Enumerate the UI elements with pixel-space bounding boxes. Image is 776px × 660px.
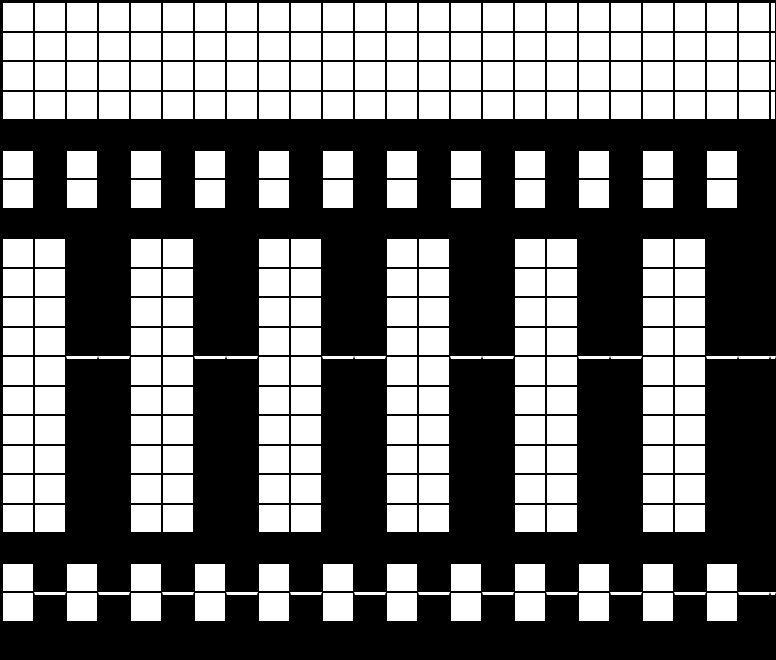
grid-cell [546, 356, 578, 386]
grid-cell [610, 533, 642, 563]
grid-cell [258, 238, 290, 268]
grid-cell [194, 120, 226, 150]
grid-cell [34, 474, 66, 504]
grid-cell [162, 91, 194, 121]
grid-cell [546, 327, 578, 357]
grid-cell [738, 592, 770, 622]
grid-cell [450, 238, 482, 268]
grid-cell [418, 150, 450, 180]
grid-cell [162, 120, 194, 150]
grid-cell [610, 32, 642, 62]
grid-cell [642, 327, 674, 357]
grid-cell [610, 474, 642, 504]
grid-cell [226, 386, 258, 416]
grid-cell [610, 209, 642, 239]
grid-cell [738, 179, 770, 209]
grid-cell [418, 592, 450, 622]
grid-cell [226, 179, 258, 209]
grid-cell [290, 415, 322, 445]
grid-cell [34, 504, 66, 534]
grid-cell [66, 297, 98, 327]
grid-cell [674, 563, 706, 593]
grid-cell [66, 592, 98, 622]
grid-cell [450, 327, 482, 357]
grid-cell [162, 533, 194, 563]
grid-cell [514, 592, 546, 622]
grid-cell [418, 32, 450, 62]
grid-cell [290, 297, 322, 327]
grid-cell [322, 356, 354, 386]
grid-cell [738, 622, 770, 660]
pattern-chart [0, 0, 776, 660]
grid-cell [130, 209, 162, 239]
grid-cell [386, 327, 418, 357]
grid-cell [482, 179, 514, 209]
grid-cell [194, 622, 226, 660]
grid-cell [66, 533, 98, 563]
grid-cell [770, 179, 776, 209]
grid-cell [66, 327, 98, 357]
grid-cell [290, 209, 322, 239]
grid-cell [738, 563, 770, 593]
grid-cell [354, 61, 386, 91]
grid-cell [354, 533, 386, 563]
grid-cell [482, 356, 514, 386]
grid-cell [34, 297, 66, 327]
grid-cell [706, 2, 738, 32]
grid-cell [34, 32, 66, 62]
grid-cell [514, 61, 546, 91]
grid-cell [258, 445, 290, 475]
grid-cell [578, 356, 610, 386]
grid-cell [450, 445, 482, 475]
grid-cell [162, 474, 194, 504]
grid-cell [706, 415, 738, 445]
grid-cell [162, 150, 194, 180]
grid-cell [290, 32, 322, 62]
grid-cell [514, 91, 546, 121]
grid-cell [354, 592, 386, 622]
grid-cell [130, 474, 162, 504]
grid-cell [2, 533, 34, 563]
grid-cell [418, 179, 450, 209]
grid-cell [162, 209, 194, 239]
grid-cell [130, 415, 162, 445]
grid-cell [642, 445, 674, 475]
grid-cell [482, 563, 514, 593]
grid-cell [34, 563, 66, 593]
grid-cell [130, 533, 162, 563]
grid-cell [674, 238, 706, 268]
grid-cell [738, 297, 770, 327]
grid-cell [290, 327, 322, 357]
grid-cell [2, 356, 34, 386]
grid-cell [610, 563, 642, 593]
grid-cell [706, 150, 738, 180]
grid-cell [770, 327, 776, 357]
grid-cell [226, 32, 258, 62]
grid-cell [482, 209, 514, 239]
grid-cell [98, 504, 130, 534]
grid-cell [226, 91, 258, 121]
grid-cell [738, 533, 770, 563]
grid-cell [546, 592, 578, 622]
grid-cell [98, 386, 130, 416]
grid-cell [578, 386, 610, 416]
grid-cell [162, 327, 194, 357]
grid-cell [578, 209, 610, 239]
grid-cell [98, 2, 130, 32]
grid-cell [2, 179, 34, 209]
grid-cell [322, 91, 354, 121]
grid-cell [418, 622, 450, 660]
grid-cell [226, 356, 258, 386]
grid-cell [770, 415, 776, 445]
grid-cell [354, 356, 386, 386]
grid-cell [386, 563, 418, 593]
grid-cell [482, 592, 514, 622]
grid-cell [2, 386, 34, 416]
grid-cell [546, 386, 578, 416]
grid-cell [322, 415, 354, 445]
grid-cell [98, 32, 130, 62]
grid-cell [98, 150, 130, 180]
grid-cell [226, 533, 258, 563]
grid-cell [642, 179, 674, 209]
grid-cell [354, 445, 386, 475]
grid-cell [546, 415, 578, 445]
grid-cell [674, 386, 706, 416]
grid-cell [194, 563, 226, 593]
grid-cell [322, 120, 354, 150]
grid-cell [322, 268, 354, 298]
grid-cell [354, 563, 386, 593]
grid-cell [290, 238, 322, 268]
grid-cell [354, 622, 386, 660]
grid-cell [162, 356, 194, 386]
grid-cell [514, 179, 546, 209]
grid-cell [450, 356, 482, 386]
grid-cell [290, 356, 322, 386]
grid-cell [2, 622, 34, 660]
grid-cell [130, 268, 162, 298]
grid-cell [482, 297, 514, 327]
grid-cell [2, 120, 34, 150]
grid-cell [290, 179, 322, 209]
grid-cell [194, 150, 226, 180]
grid-cell [258, 622, 290, 660]
grid-cell [162, 179, 194, 209]
grid-cell [674, 91, 706, 121]
grid-cell [738, 415, 770, 445]
grid-cell [674, 415, 706, 445]
grid-cell [514, 32, 546, 62]
grid-cell [642, 268, 674, 298]
grid-cell [226, 268, 258, 298]
grid-cell [546, 2, 578, 32]
grid-cell [98, 563, 130, 593]
grid-cell [162, 2, 194, 32]
grid-cell [578, 238, 610, 268]
grid-cell [546, 474, 578, 504]
grid-cell [642, 120, 674, 150]
grid-cell [706, 91, 738, 121]
grid-cell [194, 386, 226, 416]
grid-cell [322, 445, 354, 475]
grid-cell [610, 386, 642, 416]
grid-cell [418, 209, 450, 239]
grid-cell [418, 91, 450, 121]
grid-cell [194, 415, 226, 445]
grid-cell [66, 120, 98, 150]
grid-cell [386, 415, 418, 445]
grid-cell [386, 504, 418, 534]
grid-cell [738, 2, 770, 32]
grid-cell [642, 2, 674, 32]
grid-cell [226, 150, 258, 180]
grid-cell [610, 268, 642, 298]
grid-cell [66, 268, 98, 298]
grid-cell [482, 327, 514, 357]
grid-cell [770, 238, 776, 268]
grid-cell [194, 268, 226, 298]
grid-cell [354, 120, 386, 150]
grid-cell [98, 445, 130, 475]
grid-cell [674, 592, 706, 622]
grid-cell [482, 622, 514, 660]
grid-cell [2, 268, 34, 298]
grid-cell [674, 445, 706, 475]
grid-cell [514, 474, 546, 504]
grid-cell [354, 2, 386, 32]
grid-cell [66, 238, 98, 268]
grid-cell [2, 474, 34, 504]
grid-cell [258, 474, 290, 504]
grid-cell [642, 297, 674, 327]
grid-cell [674, 150, 706, 180]
grid-cell [34, 209, 66, 239]
grid-cell [226, 238, 258, 268]
grid-cell [386, 356, 418, 386]
grid-cell [482, 91, 514, 121]
grid-cell [66, 622, 98, 660]
grid-cell [706, 592, 738, 622]
grid-cell [194, 474, 226, 504]
grid-cell [770, 2, 776, 32]
grid-cell [162, 504, 194, 534]
grid-cell [34, 179, 66, 209]
grid-cell [162, 592, 194, 622]
grid-cell [130, 504, 162, 534]
grid-cell [2, 2, 34, 32]
grid-cell [514, 268, 546, 298]
grid-cell [674, 268, 706, 298]
grid-cell [674, 179, 706, 209]
grid-cell [482, 445, 514, 475]
grid-cell [514, 356, 546, 386]
grid-cell [770, 297, 776, 327]
grid-cell [226, 415, 258, 445]
grid-cell [66, 474, 98, 504]
grid-cell [290, 386, 322, 416]
grid-cell [418, 61, 450, 91]
grid-cell [354, 150, 386, 180]
grid-cell [290, 445, 322, 475]
grid-cell [130, 238, 162, 268]
grid-cell [642, 415, 674, 445]
grid-cell [482, 238, 514, 268]
grid-cell [194, 356, 226, 386]
grid-cell [386, 445, 418, 475]
grid-cell [546, 445, 578, 475]
grid-cell [34, 445, 66, 475]
grid-cell [386, 209, 418, 239]
grid-cell [450, 209, 482, 239]
grid-cell [130, 2, 162, 32]
grid-cell [610, 327, 642, 357]
grid-cell [738, 504, 770, 534]
grid-cell [258, 179, 290, 209]
grid-cell [482, 150, 514, 180]
grid-cell [578, 592, 610, 622]
grid-cell [770, 268, 776, 298]
grid-cell [162, 238, 194, 268]
grid-cell [66, 415, 98, 445]
grid-cell [674, 533, 706, 563]
grid-cell [66, 386, 98, 416]
grid-cell [514, 415, 546, 445]
grid-cell [98, 356, 130, 386]
grid-cell [290, 504, 322, 534]
grid-cell [642, 32, 674, 62]
grid-cell [386, 32, 418, 62]
grid-cell [258, 120, 290, 150]
grid-cell [34, 415, 66, 445]
grid-cell [578, 474, 610, 504]
grid-cell [546, 622, 578, 660]
grid-cell [226, 2, 258, 32]
grid-cell [322, 327, 354, 357]
grid-cell [322, 2, 354, 32]
grid-cell [738, 356, 770, 386]
grid-cell [610, 238, 642, 268]
grid-cell [514, 150, 546, 180]
grid-cell [642, 150, 674, 180]
grid-cell [162, 415, 194, 445]
grid-cell [194, 297, 226, 327]
grid-cell [770, 150, 776, 180]
grid-cell [674, 327, 706, 357]
grid-cell [258, 61, 290, 91]
grid-cell [578, 563, 610, 593]
grid-cell [514, 2, 546, 32]
grid-cell [450, 415, 482, 445]
grid-cell [130, 356, 162, 386]
grid-cell [290, 61, 322, 91]
grid-cell [706, 504, 738, 534]
grid-cell [130, 32, 162, 62]
grid-cell [162, 268, 194, 298]
grid-cell [770, 32, 776, 62]
grid-cell [322, 150, 354, 180]
grid-cell [418, 386, 450, 416]
grid-cell [354, 32, 386, 62]
grid-cell [482, 32, 514, 62]
grid-cell [322, 61, 354, 91]
grid-cell [674, 504, 706, 534]
grid-cell [226, 297, 258, 327]
grid-cell [290, 268, 322, 298]
grid-cell [706, 209, 738, 239]
grid-cell [546, 120, 578, 150]
grid-cell [386, 179, 418, 209]
grid-cell [770, 622, 776, 660]
grid-cell [322, 179, 354, 209]
grid-cell [482, 474, 514, 504]
grid-cell [98, 592, 130, 622]
grid-cell [546, 238, 578, 268]
grid-cell [642, 61, 674, 91]
grid-cell [130, 179, 162, 209]
grid-cell [98, 297, 130, 327]
grid-cell [386, 592, 418, 622]
grid-cell [418, 297, 450, 327]
grid-cell [322, 533, 354, 563]
grid-cell [706, 327, 738, 357]
grid-cell [738, 61, 770, 91]
grid-cell [98, 533, 130, 563]
grid-cell [738, 268, 770, 298]
grid-cell [578, 150, 610, 180]
grid-cell [450, 386, 482, 416]
grid-cell [610, 91, 642, 121]
grid-cell [706, 297, 738, 327]
grid-cell [770, 356, 776, 386]
grid-cell [578, 327, 610, 357]
grid-cell [578, 415, 610, 445]
grid-cell [450, 2, 482, 32]
grid-cell [194, 238, 226, 268]
grid-cell [642, 533, 674, 563]
grid-cell [2, 504, 34, 534]
grid-cell [706, 61, 738, 91]
grid-cell [450, 474, 482, 504]
grid-cell [130, 91, 162, 121]
grid-cell [642, 209, 674, 239]
grid-cell [290, 622, 322, 660]
grid-cell [2, 327, 34, 357]
grid-cell [34, 91, 66, 121]
grid-cell [514, 386, 546, 416]
grid-cell [194, 32, 226, 62]
grid-cell [258, 504, 290, 534]
grid-cell [130, 622, 162, 660]
grid-cell [66, 150, 98, 180]
grid-cell [770, 386, 776, 416]
grid-cell [418, 533, 450, 563]
grid-cell [418, 120, 450, 150]
grid-cell [738, 238, 770, 268]
grid-cell [354, 386, 386, 416]
grid-cell [418, 474, 450, 504]
grid-cell [98, 622, 130, 660]
grid-cell [2, 297, 34, 327]
grid-cell [642, 238, 674, 268]
grid-cell [546, 150, 578, 180]
grid-cell [642, 474, 674, 504]
grid-cell [706, 622, 738, 660]
grid-cell [738, 386, 770, 416]
